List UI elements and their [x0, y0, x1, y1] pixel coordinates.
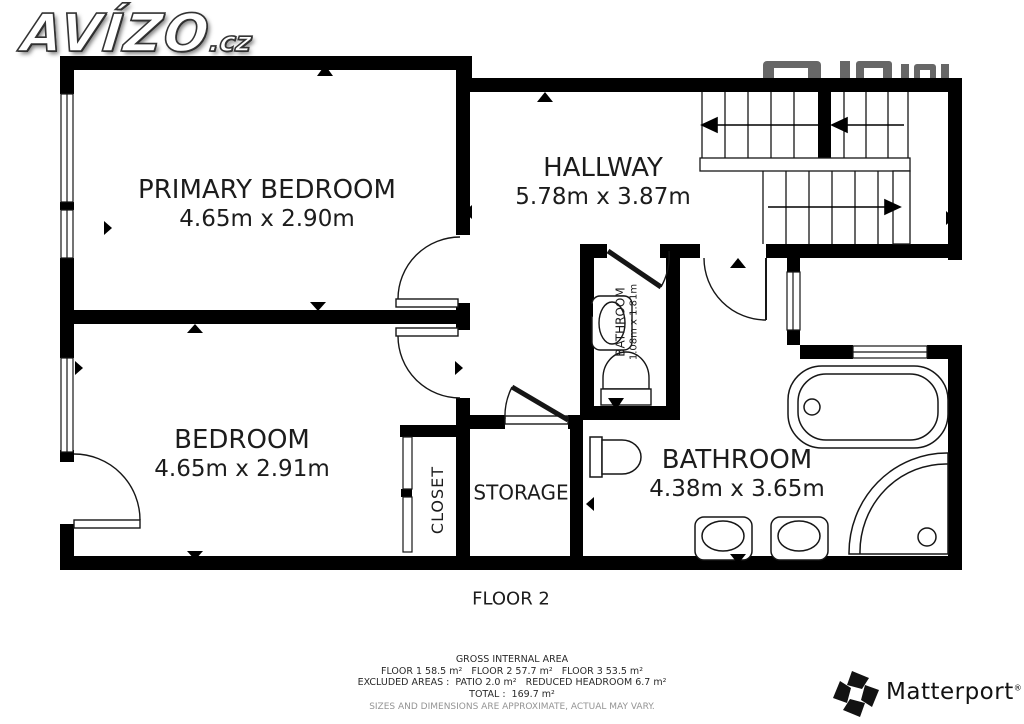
floorplan-page: AVÍZO.cz [0, 0, 1024, 724]
bedroom-label: BEDROOM [174, 426, 310, 456]
sink [695, 517, 752, 560]
hallway-label: HALLWAY [543, 154, 663, 184]
registered-mark: ® [1014, 683, 1023, 692]
hallway-dims: 5.78m x 3.87m [515, 184, 690, 210]
matterport-name: Matterport [886, 679, 1014, 705]
shower [849, 453, 948, 554]
storage-label: STORAGE [473, 482, 568, 505]
bathroom-label: BATHROOM [662, 446, 812, 476]
gross-internal-area-title: GROSS INTERNAL AREA [0, 654, 1024, 666]
bedroom-dims: 4.65m x 2.91m [154, 456, 329, 482]
small-bathroom-dims: 1.08m x 1.81m [628, 284, 640, 360]
small-bathroom-label: BATHROOM [614, 284, 628, 360]
primary-bedroom-dims: 4.65m x 2.90m [179, 206, 354, 232]
toilet [590, 437, 641, 477]
primary-bedroom-label: PRIMARY BEDROOM [138, 176, 396, 206]
floor-label: FLOOR 2 [472, 590, 550, 611]
sink [771, 517, 828, 560]
stairs [700, 92, 910, 244]
matterport-wordmark: Matterport® [886, 679, 1022, 705]
small-bathroom-label-block: BATHROOM 1.08m x 1.81m [614, 284, 639, 360]
bathroom-dims: 4.38m x 3.65m [649, 476, 824, 502]
bathtub [788, 366, 948, 448]
floorplan-drawing [0, 0, 1024, 724]
closet-label: CLOSET [429, 466, 447, 534]
matterport-icon [828, 668, 884, 720]
